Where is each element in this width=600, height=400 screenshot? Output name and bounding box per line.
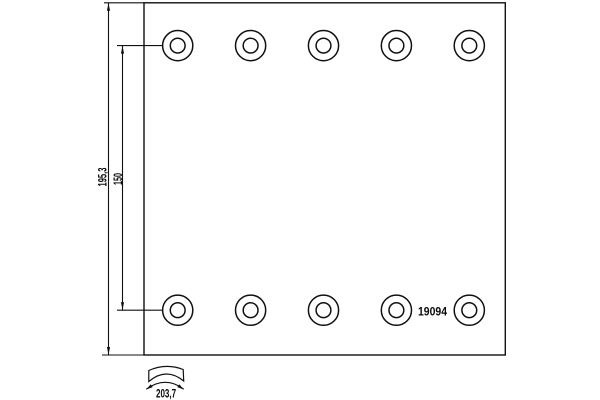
svg-text:203,7: 203,7 [156,388,176,400]
svg-text:195,3: 195,3 [97,167,110,186]
svg-text:150: 150 [112,173,125,185]
svg-text:19094: 19094 [418,306,448,319]
